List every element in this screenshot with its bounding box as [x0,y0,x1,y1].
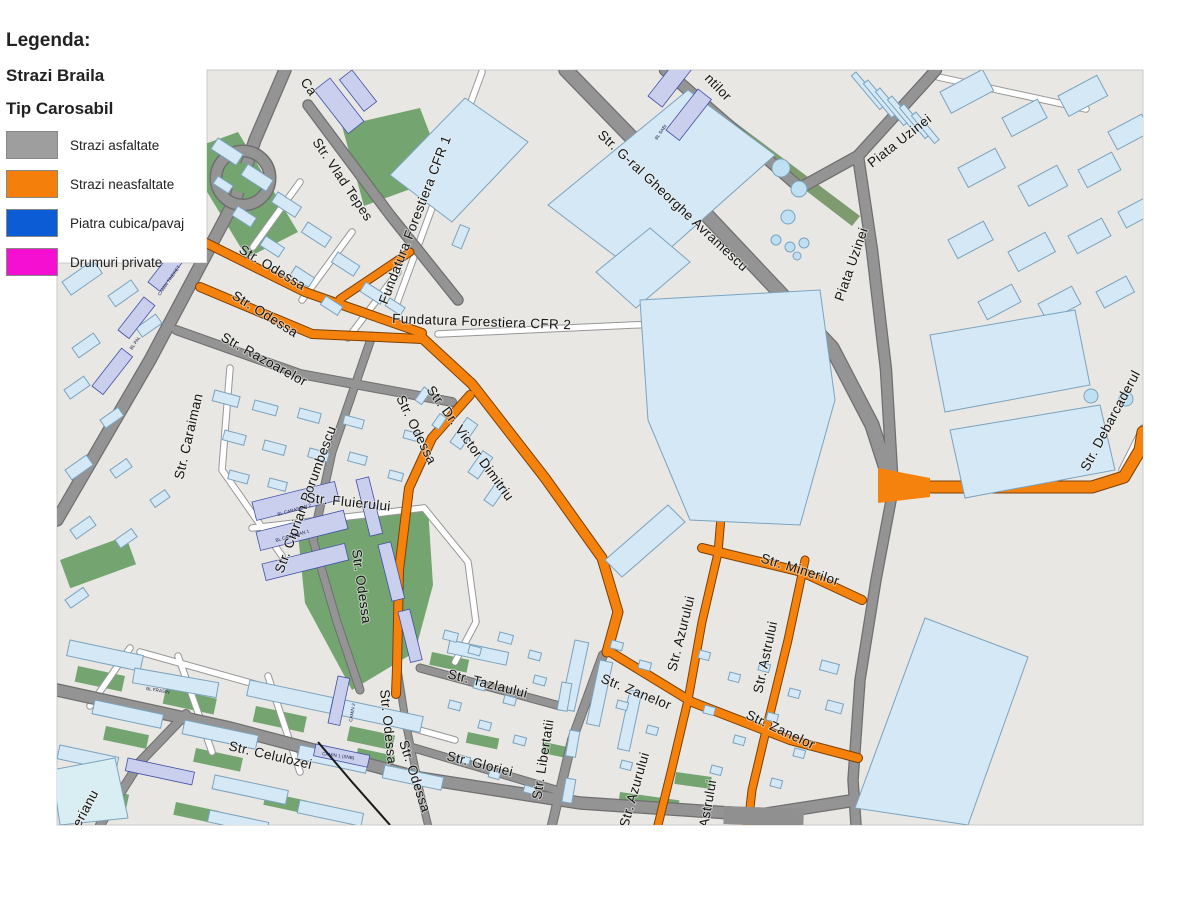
legend-title: Legenda: [6,30,206,52]
legend-item-label: Piatra cubica/pavaj [70,216,184,231]
legend: Legenda: Strazi Braila Tip Carosabil Str… [6,30,206,287]
legend-item-private: Drumuri private [6,248,206,276]
legend-section-title: Tip Carosabil [6,99,206,119]
legend-item-cobblestone: Piatra cubica/pavaj [6,209,206,237]
legend-item-label: Drumuri private [70,255,162,270]
parking-area [723,806,804,827]
page: Ca Str. Vlad Tepes Fundatura Forestiera … [0,0,1200,900]
legend-item-unpaved: Strazi neasfaltate [6,170,206,198]
legend-item-asphalt: Strazi asfaltate [6,131,206,159]
unpaved-swatch [6,170,58,198]
legend-item-label: Strazi asfaltate [70,138,159,153]
legend-item-label: Strazi neasfaltate [70,177,174,192]
cobblestone-swatch [6,209,58,237]
private-roads-swatch [6,248,58,276]
asphalt-swatch [6,131,58,159]
legend-subtitle: Strazi Braila [6,66,206,86]
